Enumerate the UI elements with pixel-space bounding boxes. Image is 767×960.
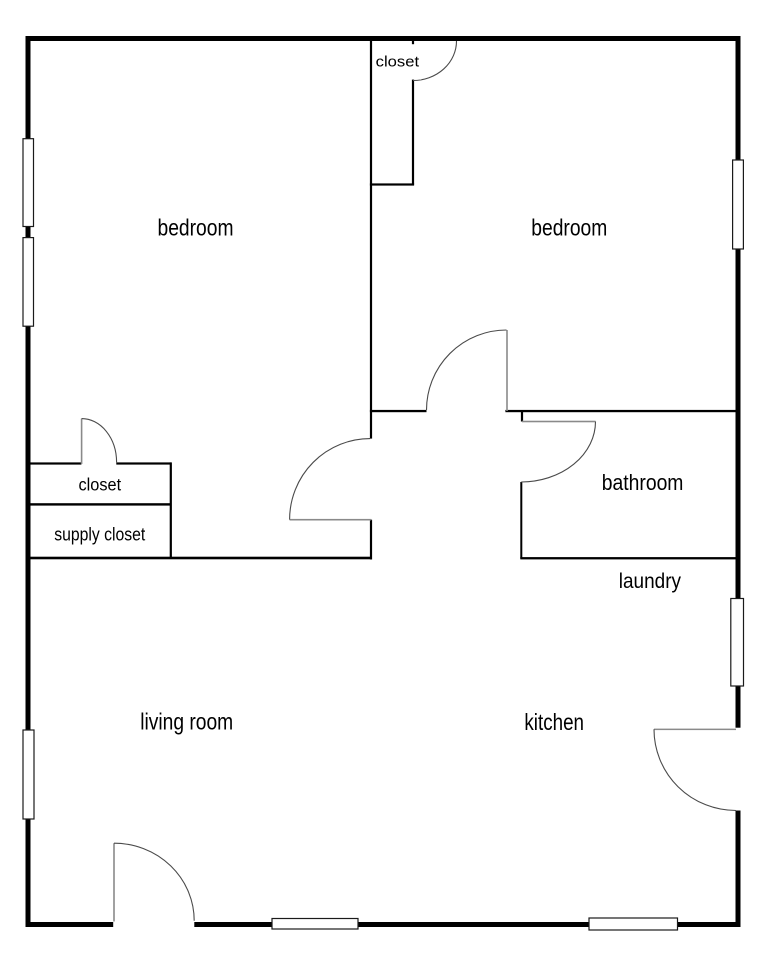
svg-text:bathroom: bathroom — [602, 470, 684, 495]
svg-text:living room: living room — [140, 708, 233, 734]
svg-text:bedroom: bedroom — [531, 215, 607, 241]
svg-text:closet: closet — [376, 55, 419, 71]
svg-text:closet: closet — [79, 474, 122, 494]
svg-text:supply closet: supply closet — [54, 525, 145, 545]
svg-text:kitchen: kitchen — [524, 709, 584, 735]
svg-text:bedroom: bedroom — [158, 215, 234, 241]
svg-text:laundry: laundry — [619, 568, 681, 593]
